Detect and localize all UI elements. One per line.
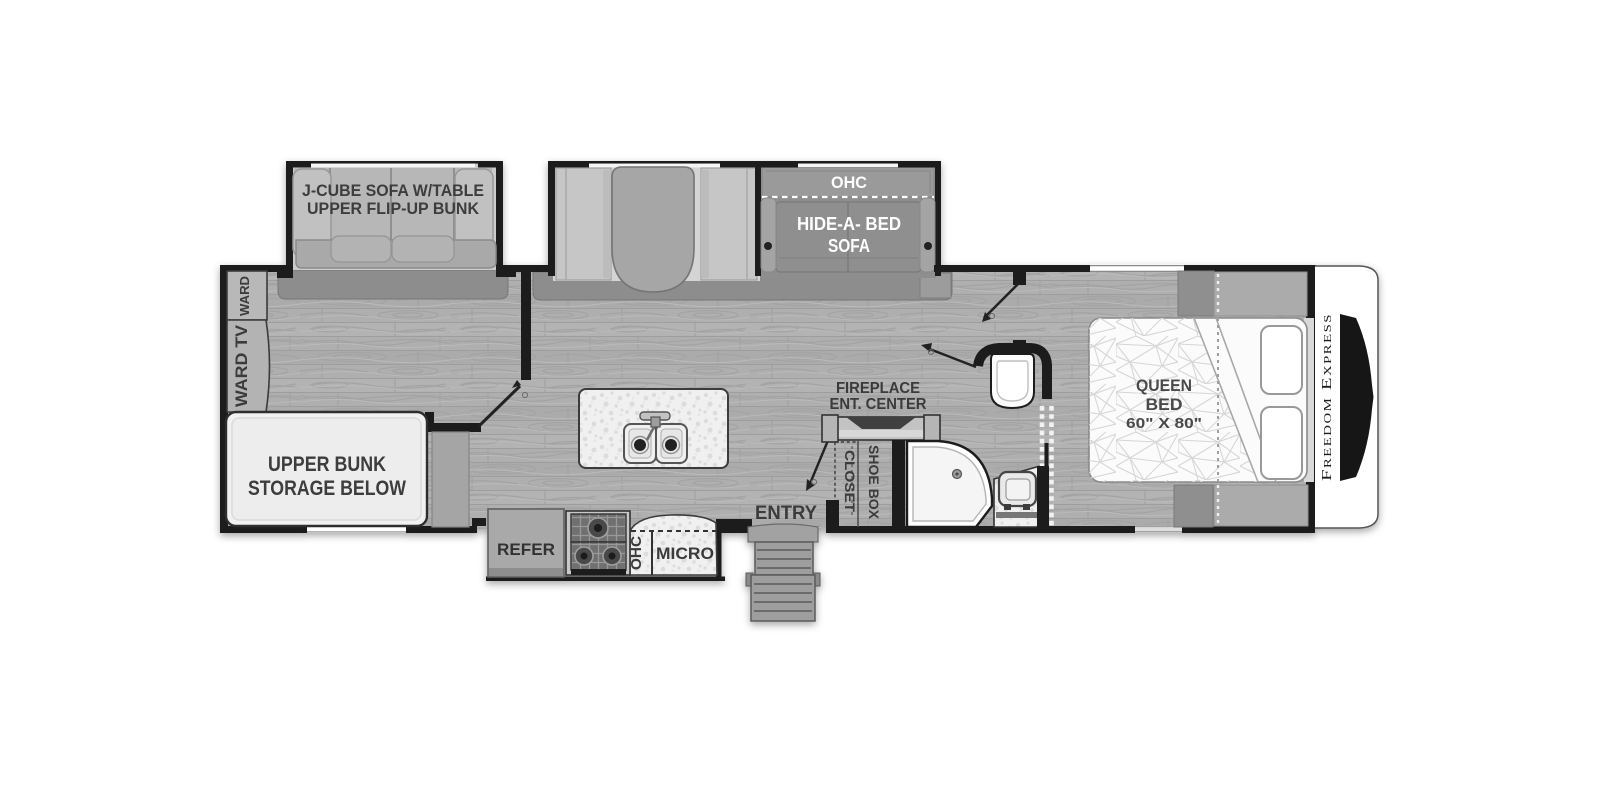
svg-text:ENT. CENTER: ENT. CENTER: [830, 396, 927, 413]
svg-text:HIDE-A- BED: HIDE-A- BED: [797, 214, 901, 234]
svg-text:SOFA: SOFA: [828, 236, 870, 256]
svg-text:UPPER FLIP-UP BUNK: UPPER FLIP-UP BUNK: [307, 200, 479, 218]
svg-text:WARD: WARD: [238, 276, 252, 316]
svg-text:SHOE BOX: SHOE BOX: [866, 445, 881, 519]
svg-text:QUEEN: QUEEN: [1136, 377, 1192, 395]
svg-text:Freedom Express: Freedom Express: [1320, 313, 1335, 481]
svg-text:STORAGE BELOW: STORAGE BELOW: [248, 477, 406, 500]
svg-text:BED: BED: [1146, 396, 1183, 414]
svg-text:WARD TV: WARD TV: [232, 324, 251, 407]
svg-text:60" X 80": 60" X 80": [1126, 416, 1202, 432]
svg-text:MICRO: MICRO: [656, 545, 714, 563]
svg-text:OHC: OHC: [831, 173, 867, 192]
svg-text:CLOSET: CLOSET: [842, 450, 857, 513]
svg-text:UPPER BUNK: UPPER BUNK: [268, 453, 386, 476]
svg-text:FIREPLACE: FIREPLACE: [836, 380, 920, 397]
svg-text:J-CUBE SOFA W/TABLE: J-CUBE SOFA W/TABLE: [302, 182, 484, 200]
svg-text:ENTRY: ENTRY: [755, 503, 817, 524]
svg-text:REFER: REFER: [497, 540, 555, 559]
